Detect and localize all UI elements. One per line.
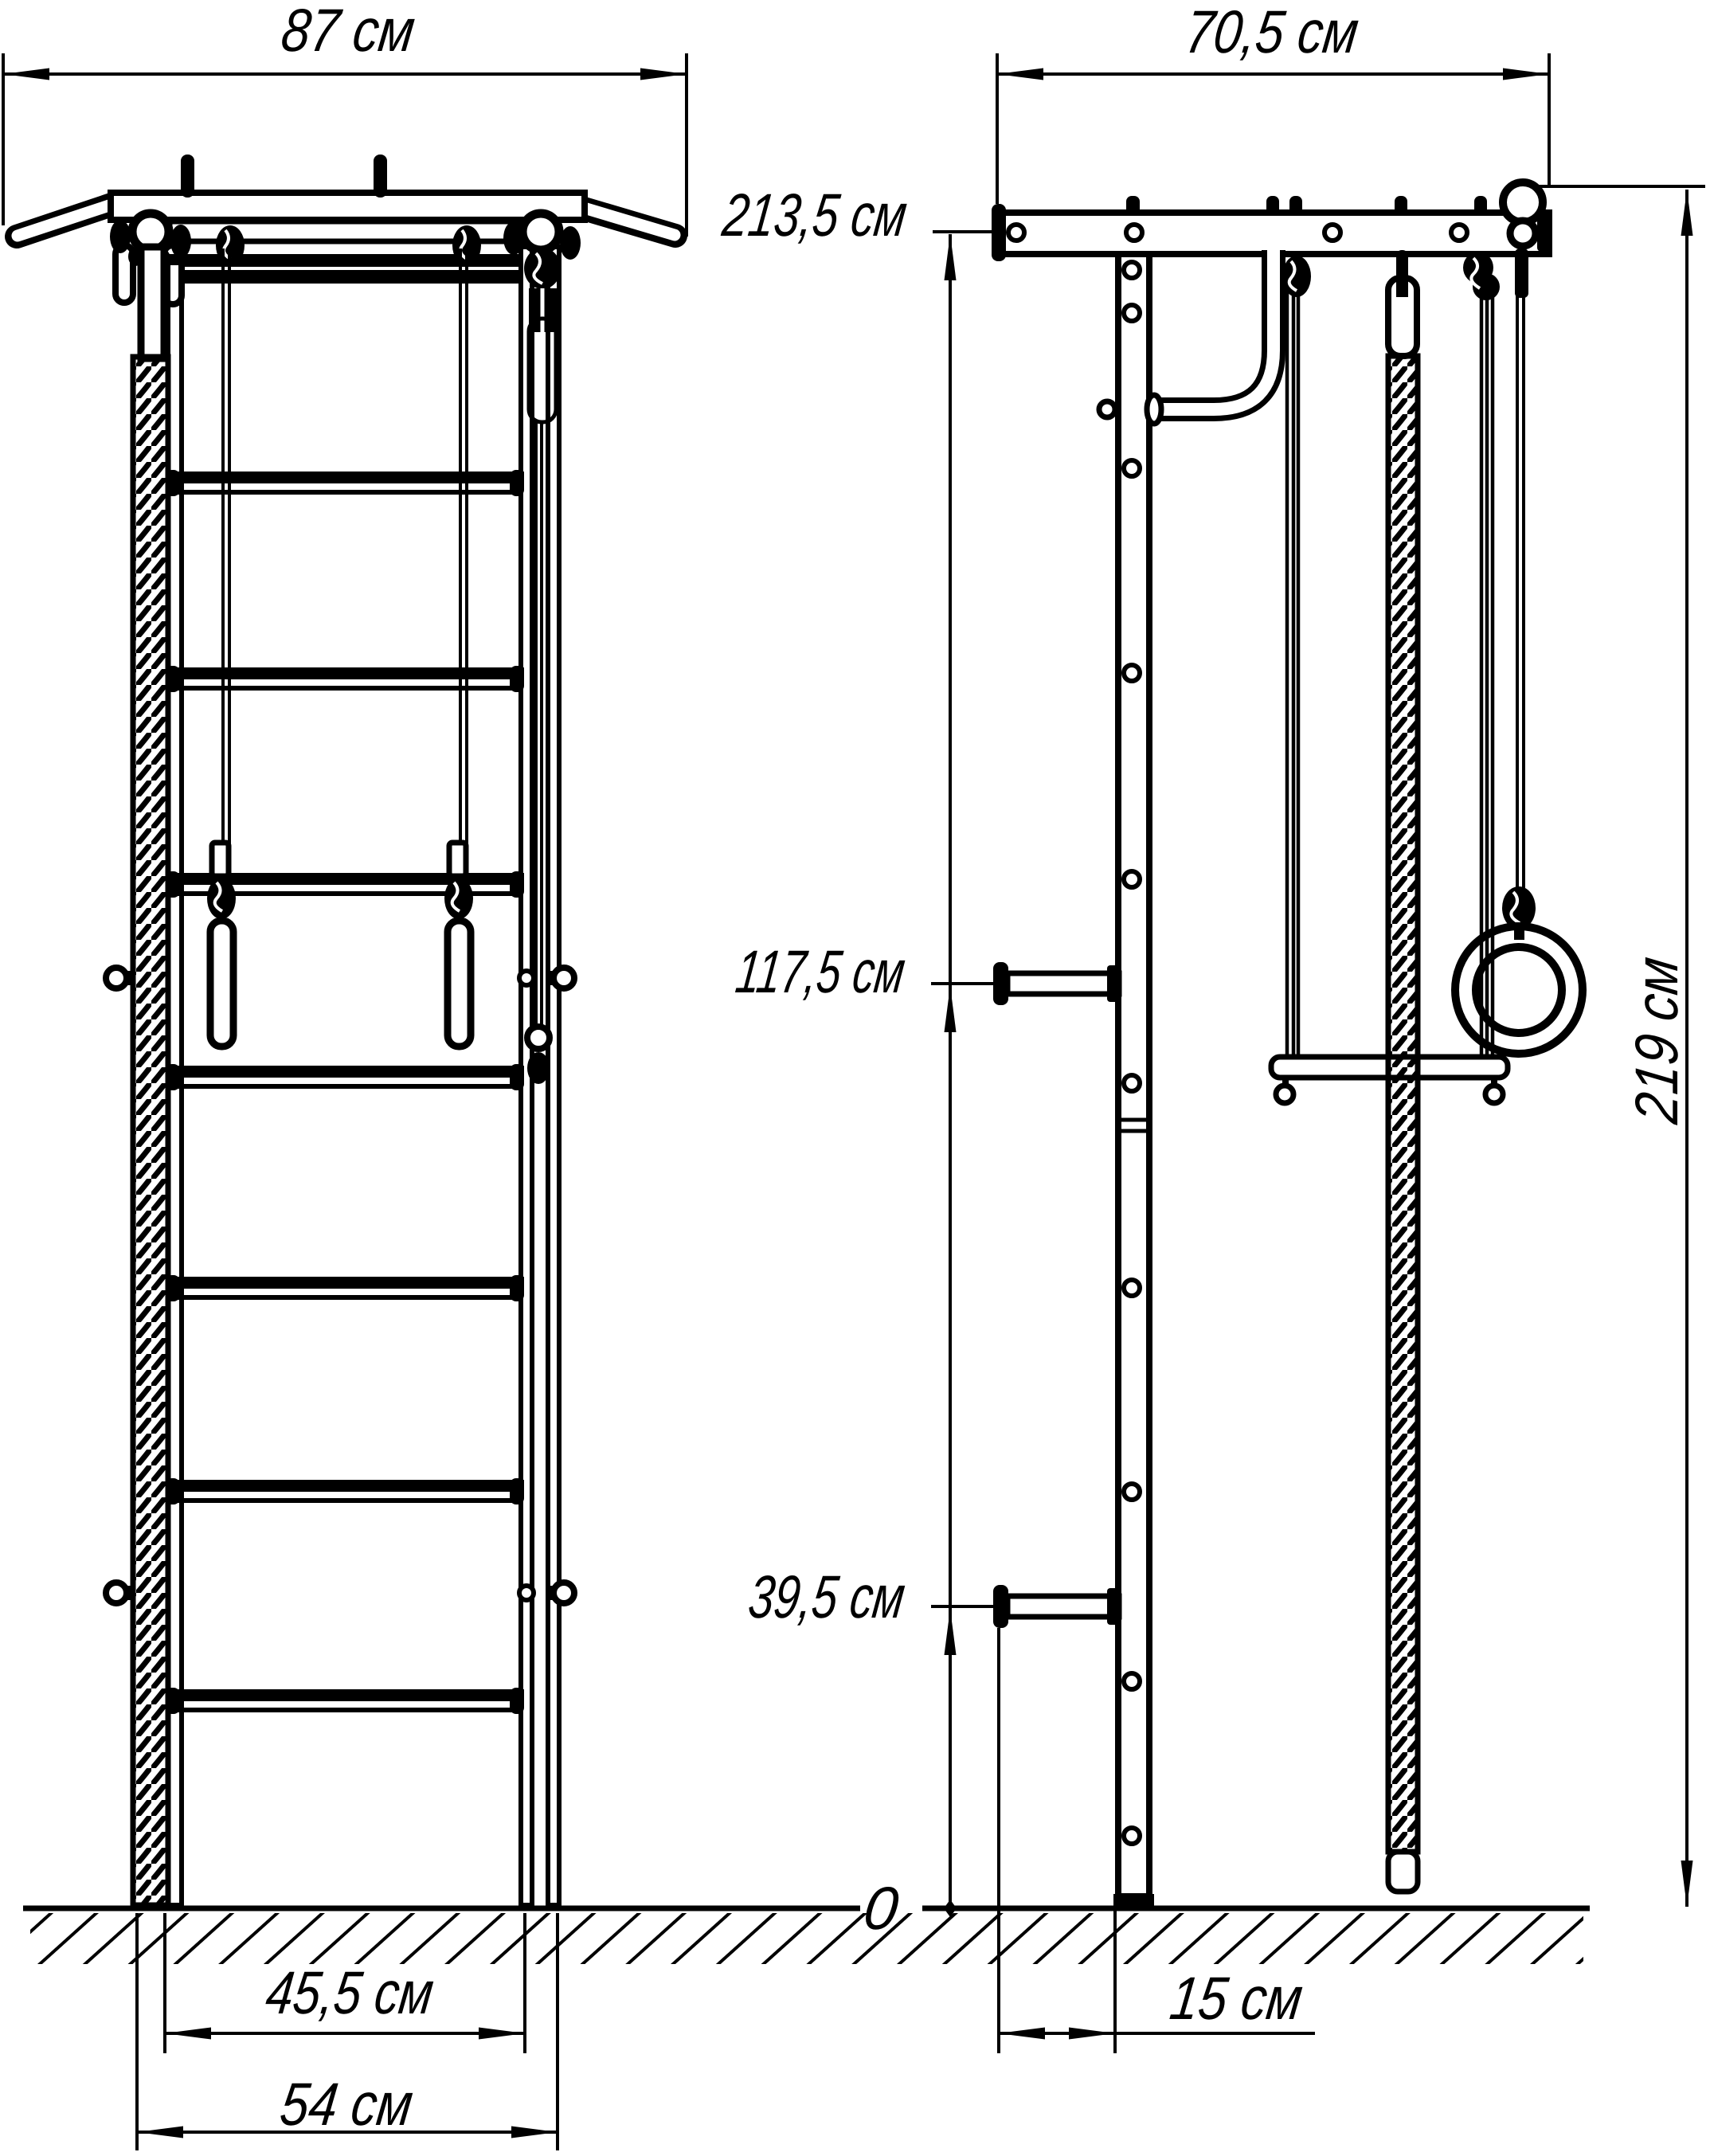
svg-text:213,5 см: 213,5 см <box>718 182 910 249</box>
svg-text:117,5 см: 117,5 см <box>732 938 908 1006</box>
svg-text:45,5 см: 45,5 см <box>262 1959 436 2027</box>
svg-text:15 см: 15 см <box>1167 1965 1306 2033</box>
svg-text:87 см: 87 см <box>278 0 418 65</box>
svg-text:39,5 см: 39,5 см <box>745 1563 908 1631</box>
svg-text:70,5 см: 70,5 см <box>1182 0 1362 66</box>
svg-text:54 см: 54 см <box>276 2071 416 2138</box>
svg-text:219 см: 219 см <box>1623 953 1691 1127</box>
